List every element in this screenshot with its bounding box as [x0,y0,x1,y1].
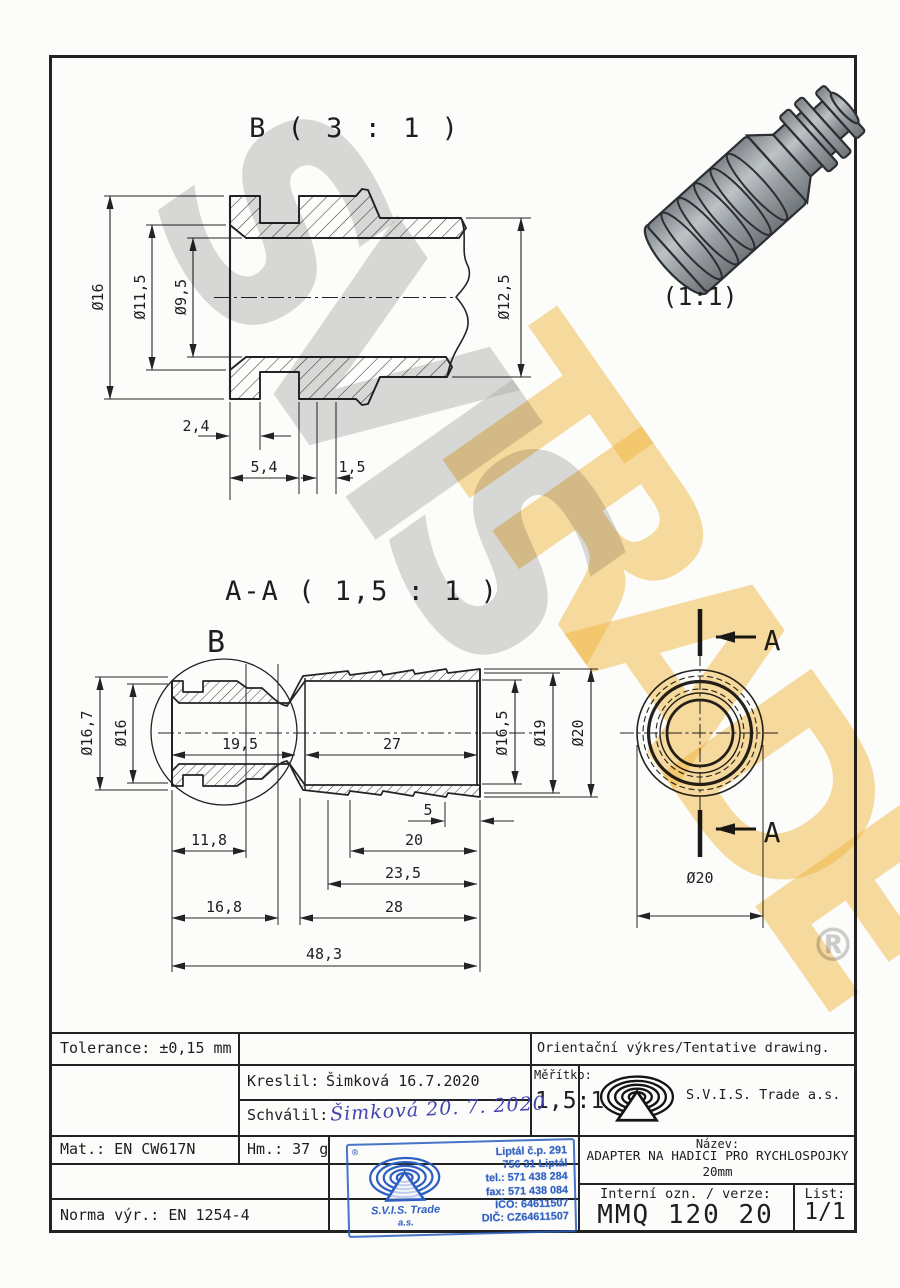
internal-id-value: MMQ 120 20 [578,1200,793,1230]
approved-by-label: Schválil: [247,1106,328,1124]
dim-label: 23,5 [385,864,421,882]
stamp-logo [358,1155,451,1205]
dim-label: 2,4 [182,417,209,435]
tb-line [49,1032,857,1034]
dim-label: 20 [405,831,423,849]
tb-line [328,1135,330,1233]
drawn-by-value: Šimková 16.7.2020 [326,1072,480,1090]
dim-label: Ø16,5 [493,710,511,755]
dim-label: 1,5 [338,458,365,476]
aa-bottom-wall-barb [289,763,480,797]
tb-line [578,1183,857,1185]
material-value: Mat.: EN CW617N [60,1140,195,1158]
dim-label: Ø20 [686,869,713,887]
dim-label: Ø19 [531,719,549,746]
dim-label: Ø16,7 [78,710,96,755]
dim-label: 16,8 [206,898,242,916]
company-logo [598,1074,676,1126]
dim-label: Ø12,5 [495,274,513,319]
drawing-canvas: B ( 3 : 1 ) [0,0,900,1035]
aa-dimension-lines [100,669,591,966]
b-extension-lines [104,196,531,500]
dim-label: Ø11,5 [131,274,149,319]
tb-line [49,1064,857,1066]
stamp-address: Liptál č.p. 291 756 31 Liptál tel.: 571 … [480,1144,569,1225]
tb-line [530,1032,532,1137]
end-view: A A Ø20 [620,609,781,928]
sheet-number-value: 1/1 [793,1199,857,1225]
company-name: S.V.I.S. Trade a.s. [686,1087,840,1103]
dim-label: Ø9,5 [172,279,190,315]
aa-bottom-wall-small [172,761,289,786]
aa-extension-lines [95,664,598,972]
dim-label: Ø16 [112,719,130,746]
scale-label: Měřítko: [534,1068,592,1082]
section-view-aa: A-A ( 1,5 : 1 ) B [78,576,598,972]
dim-label: 27 [383,735,401,753]
drawn-by-label: Kreslil: [247,1072,319,1090]
dim-label: Ø16 [89,283,107,310]
stamp-company-suffix: a.s. [360,1216,452,1229]
stamp-company: S.V.I.S. Trade [359,1203,451,1217]
section-label-a-bottom: A [764,816,781,849]
drawing-type-note: Orientační výkres/Tentative drawing. [537,1040,830,1056]
tolerance-note: Tolerance: ±0,15 mm [60,1039,232,1057]
dim-label: 19,5 [222,735,258,753]
part-name-line2: 20mm [578,1164,857,1179]
iso-view: (1:1) [636,71,878,311]
weight-value: Hm.: 37 g [247,1140,328,1158]
aa-top-wall-small [172,681,289,706]
drawing-sheet: B ( 3 : 1 ) [0,0,900,1288]
dim-label: 28 [385,898,403,916]
part-name-line1: ADAPTER NA HADICI PRO RYCHLOSPOJKY [578,1149,857,1164]
dim-label: 11,8 [191,831,227,849]
dim-label: Ø20 [569,719,587,746]
tb-line [238,1032,240,1165]
dim-label: 5,4 [250,458,277,476]
dim-label: 48,3 [306,945,342,963]
company-stamp: ® S.V.I.S. Trade a.s. Liptál č.p. 291 75… [346,1138,577,1238]
aa-dim-labels: Ø16,7 Ø16 19,5 27 Ø16,5 Ø19 Ø20 5 11,8 2… [78,710,587,963]
b-bottom-wall [230,357,452,405]
stamp-dic: DIČ: CZ64611507 [482,1210,569,1225]
aa-top-wall-barb [289,669,480,703]
iso-scale-label: (1:1) [662,282,737,311]
dim-label: 5 [423,801,432,819]
section-title: A-A ( 1,5 : 1 ) [225,576,499,607]
detail-view-b: B ( 3 : 1 ) [89,113,531,500]
detail-b-marker: B [207,625,225,660]
b-top-wall [230,189,466,238]
standard-value: Norma výr.: EN 1254-4 [60,1206,250,1224]
section-label-a-top: A [764,624,781,657]
view-b-title: B ( 3 : 1 ) [249,113,461,144]
